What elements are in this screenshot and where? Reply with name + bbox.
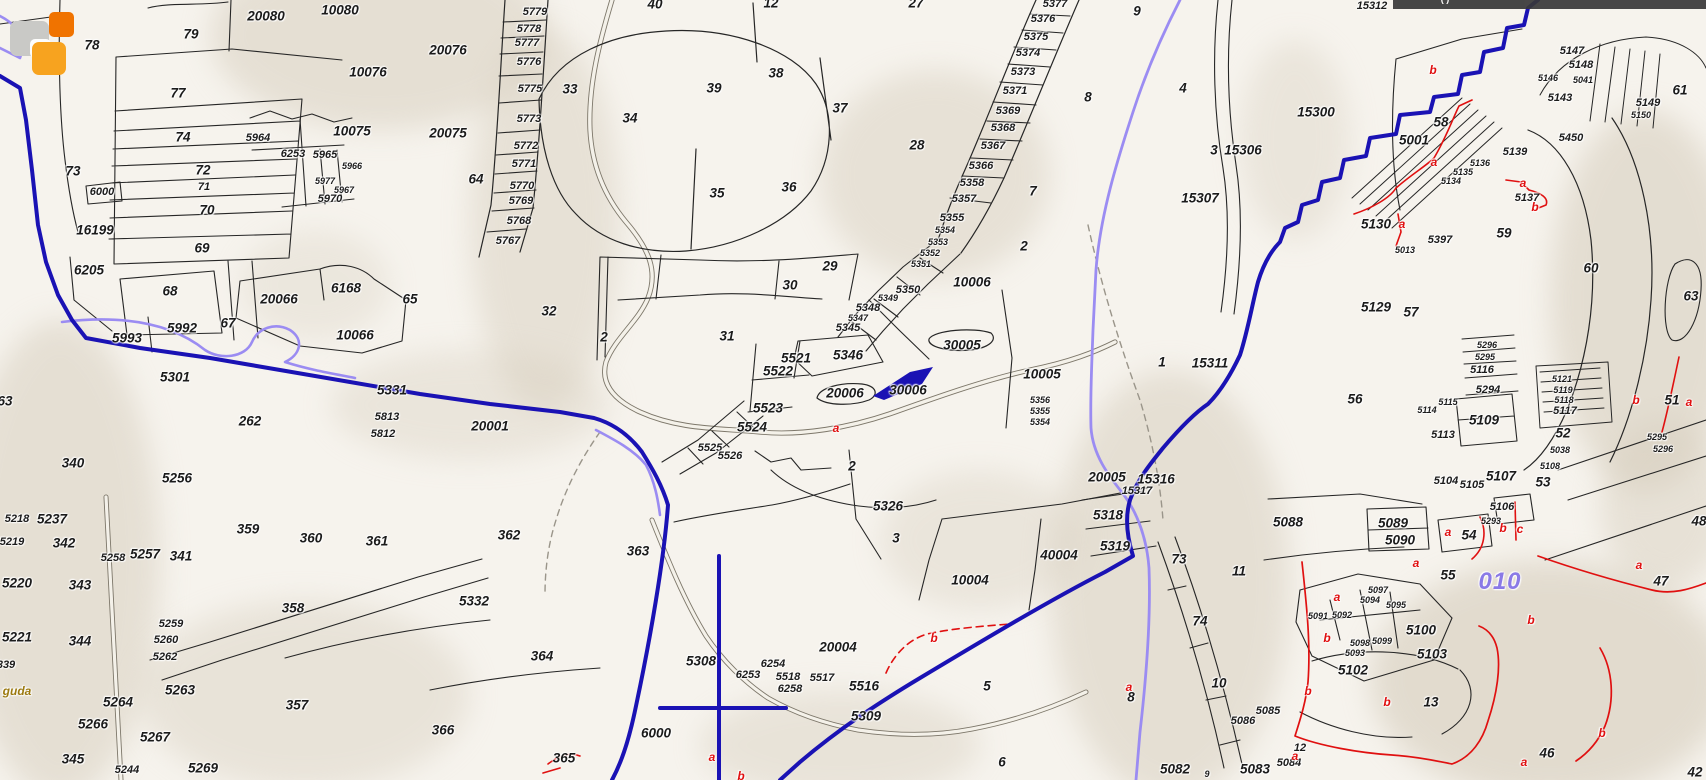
subparcel-letter: b [1598,726,1605,740]
parcel-60-east [1610,118,1652,462]
parcel-label: 5351 [911,259,931,269]
parcel-label: 20080 [247,9,285,24]
parcel-label: 5812 [371,428,395,440]
parcel-label: 59 [1496,226,1511,241]
parcel-label: 5109 [1469,413,1499,428]
parcel-label: 9 [1204,769,1209,779]
parcel-label: 5369 [996,105,1020,117]
parcel-label: 340 [62,456,85,471]
parcel-label: 20001 [471,419,509,434]
parcel-label: 5769 [509,195,533,207]
parcel-label: 5366 [969,160,993,172]
parcel-label: 339 [0,659,15,671]
parcel-label: 5221 [2,630,32,645]
parcel-label: 15317 [1122,485,1153,497]
logo-tile-amber [32,42,66,75]
parcel-label: 35 [709,186,724,201]
parcel-label: 5267 [140,730,170,745]
parcel-label: 5772 [514,140,538,152]
parcel-label: 72 [195,163,210,178]
parcel-label: 31 [719,329,734,344]
parcel-label: 5094 [1360,595,1380,605]
parcel-label: 63 [1683,289,1698,304]
parcel-label: 5964 [246,132,270,144]
parcel-label: 5345 [836,322,860,334]
parcel-label: 6000 [641,726,671,741]
parcel-label: 20004 [819,640,857,655]
grid-nw [109,0,342,264]
parcel-label: 67 [220,316,235,331]
parcel-label: 13 [1423,695,1438,710]
red-b-center [886,624,1010,673]
parcel-label: 5134 [1441,176,1461,186]
parcel-label: 74 [175,130,190,145]
parcel-label: 5100 [1406,623,1436,638]
parcel-label: 6000 [90,186,114,198]
parcel-label: 5977 [315,176,335,186]
parcel-label: 70 [199,203,214,218]
parcel-label: 5041 [1573,75,1593,85]
parcel-label: 2 [600,330,608,345]
parcel-label: 71 [198,181,210,193]
parcel-label: 52 [1555,426,1570,441]
parcel-label: 5779 [523,6,547,18]
strip-358 [150,559,488,680]
red-47 [1538,556,1706,592]
info-bar: ( ) [1393,0,1706,9]
parcel-label: 8 [1084,90,1092,105]
subparcel-letter: b [737,769,744,780]
parcel-label: 53 [1535,475,1550,490]
parcel-label: 5149 [1636,97,1660,109]
subparcel-letter: a [1636,558,1643,572]
subparcel-letter: a [1521,755,1528,769]
parcel-label: 5139 [1503,146,1527,158]
parcel-label: 10006 [953,275,991,290]
parcel-label: 46 [1539,746,1554,761]
parcel-label: 65 [402,292,417,307]
parcel-label: 28 [909,138,924,153]
parcel-label: 1 [1158,355,1166,370]
parcel-label: 5777 [515,37,539,49]
parcel-label: 5108 [1540,461,1560,471]
subparcel-letter: b [1499,521,1506,535]
parcel-label: 5091 [1308,611,1328,621]
parcel-label: 5992 [167,321,197,336]
parcel-label: 5116 [1470,364,1494,376]
parcel-label: 5130 [1361,217,1391,232]
parcel-label: 5966 [342,161,362,171]
parcel-label: 5355 [1030,406,1050,416]
parcel-label: 10080 [321,3,359,18]
parcel-label: 5778 [517,23,541,35]
subparcel-letter: a [1686,395,1693,409]
parcel-label: 5355 [940,212,964,224]
chain-5345 [838,241,960,351]
info-bar-text: ( ) [1441,0,1450,4]
parcel-label: 39 [706,81,721,96]
parcel-label: 5367 [981,140,1005,152]
parcel-label: 5258 [101,552,125,564]
parcel-label: 3 [892,531,900,546]
parcels-29-31 [597,254,858,360]
parcel-label: 5264 [103,695,133,710]
parcel-label: 40004 [1040,548,1078,563]
parcel-label: 36 [781,180,796,195]
parcel-label: 361 [366,534,389,549]
parcel-label: 5965 [313,149,337,161]
parcel-label: 9 [1133,4,1141,19]
strip-73-74 [1158,537,1242,768]
parcel-label: 5776 [517,56,541,68]
parcel-label: 5376 [1031,13,1055,25]
parcel-label: 64 [468,172,483,187]
parcel-label: 5352 [920,248,940,258]
parcel-label: 5526 [718,450,742,462]
parcel-label: 5326 [873,499,903,514]
parcel-label: 79 [183,27,198,42]
parcel-label: 10075 [333,124,371,139]
parcel-label: 37 [832,101,847,116]
subparcel-letter: a [1399,217,1406,231]
parcel-label: 344 [69,634,92,649]
parcel-60-west [1524,130,1593,470]
parcel-label: 2 [848,459,856,474]
parcel-label: 6253 [281,148,305,160]
parcel-label: 5970 [318,193,342,205]
parcel-label: 5113 [1431,429,1455,441]
app-logo [0,0,90,90]
purple-center [596,430,660,515]
parcel-label: 5237 [37,512,67,527]
red-5001 [1354,100,1472,214]
parcel-label: 60 [1583,261,1598,276]
parcel-label: 58 [1433,115,1448,130]
parcel-label: 4 [1179,81,1187,96]
parcel-label: 5086 [1231,715,1255,727]
subparcel-letter: a [1445,525,1452,539]
parcel-label: 5301 [160,370,190,385]
parcel-label: 5373 [1011,66,1035,78]
parcel-label: 5082 [1160,762,1190,777]
parcel-label: 57 [1403,305,1418,320]
parcel-label: 5775 [518,83,542,95]
parcel-label: 5146 [1538,73,1558,83]
parcel-label: 5350 [896,284,920,296]
purple-loop-west [62,319,355,378]
parcel-label: 10005 [1023,367,1061,382]
parcel-label: 74 [1192,614,1207,629]
parcel-label: 5098 [1350,638,1370,648]
parcel-label: 5104 [1434,475,1458,487]
parcel-label: 5256 [162,471,192,486]
parcel-label: 5813 [375,411,399,423]
parcel-label: 5993 [112,331,142,346]
parcel-label: 20076 [429,43,467,58]
parcel-label: 10 [1211,676,1226,691]
parcel-label: 5105 [1460,479,1484,491]
parcel-label: 48 [1691,514,1706,529]
parcel-label: 366 [432,723,455,738]
parcel-label: 20006 [826,386,864,401]
parcel-label: 5013 [1395,245,1415,255]
parcel-label: 5038 [1550,445,1570,455]
parcel-label: 5263 [165,683,195,698]
parcel-label: 343 [69,578,92,593]
parcel-label: 20075 [429,126,467,141]
parcel-label: 5296 [1653,444,1673,454]
parcel-label: 5356 [1030,395,1050,405]
parcel-label: 5296 [1477,340,1497,350]
parcel-label: 5106 [1490,501,1514,513]
parcel-label: 73 [1171,552,1186,567]
subparcel-letter: b [1632,393,1639,407]
parcel-label: 16199 [76,223,114,238]
parcel-label: 30006 [889,383,927,398]
parcel-label: 357 [286,698,309,713]
parcel-label: 5517 [810,672,834,684]
parcel-label: 55 [1440,568,1455,583]
parcel-label: 5319 [1100,539,1130,554]
parcel-label: 33 [562,82,577,97]
parcel-label: 342 [53,536,76,551]
parcel-label: 5095 [1386,600,1406,610]
parcel-label: 5117 [1553,405,1577,417]
parcel-label: 5357 [952,193,976,205]
subparcel-letter: b [1383,695,1390,709]
parcel-label: 5092 [1332,610,1352,620]
parcel-label: 5107 [1486,469,1516,484]
parcel-label: 5346 [833,348,863,363]
parcel-label: 5150 [1631,110,1651,120]
parcel-label: 6 [998,755,1006,770]
parcel-label: 5218 [5,513,29,525]
parcel-label: 77 [170,86,185,101]
parcel-label: 5129 [1361,300,1391,315]
parcel-label: 51 [1664,393,1679,408]
parcel-label: 364 [531,649,554,664]
subparcel-letter: b [1323,631,1330,645]
parcel-label: 5097 [1368,585,1388,595]
parcel-label: 5118 [1554,395,1573,405]
parcel-label: 40 [647,0,662,12]
red-46 [1576,648,1611,761]
parcel-label: 5089 [1378,516,1408,531]
parcel-label: 5368 [991,122,1015,134]
parcel-label: 5371 [1003,85,1027,97]
parcel-label: 5259 [159,618,183,630]
parcel-label: 5103 [1417,647,1447,662]
parcel-label: 5523 [753,401,783,416]
parcel-label: 5773 [517,113,541,125]
parcel-label: 5518 [776,671,800,683]
hatch-5117 [1536,362,1612,428]
purple-main [1091,0,1180,780]
parcel-label: 5143 [1548,92,1572,104]
parcel-label: 2 [1020,239,1028,254]
parcel-label: 5114 [1417,405,1436,415]
parcel-label: 5266 [78,717,108,732]
parcel-label: 6168 [331,281,361,296]
parcel-label: 30005 [943,338,981,353]
logo-tile-orange [49,12,74,37]
parcel-label: 5354 [935,225,955,235]
parcel-label: 5293 [1481,516,1501,526]
parcel-label: 362 [498,528,521,543]
parcel-label: 5308 [686,654,716,669]
parcel-label: 5099 [1372,636,1392,646]
parcel-label: 359 [237,522,260,537]
parcel-label: 20066 [260,292,298,307]
parcel-label: guda [3,684,32,698]
parcel-label: 5524 [737,420,767,435]
parcel-label: 5318 [1093,508,1123,523]
parcel-label: 5090 [1385,533,1415,548]
parcel-label: 5219 [0,536,24,548]
parcel-label: 5121 [1552,374,1572,384]
subparcel-letter: b [930,631,937,645]
parcel-label: 42 [1687,765,1702,780]
parcel-label: 11 [1232,564,1246,579]
parcel-label: 5358 [960,177,984,189]
parcel-label: 15312 [1357,0,1388,12]
subparcel-letter: a [1292,749,1299,763]
parcel-label: 5093 [1345,648,1365,658]
parcel-label: 34 [622,111,637,126]
parcel-label: 7 [1029,184,1037,199]
subparcel-letter: a [1431,155,1438,169]
parcel-label: 6254 [761,658,785,670]
parcel-label: 363 [627,544,650,559]
parcel-label: 345 [62,752,85,767]
map-viewport[interactable]: 7879777472717073692008010080100761007520… [0,0,1706,780]
parcel-label: 68 [162,284,177,299]
parcel-label: 5354 [1030,417,1050,427]
parcel-label: 47 [1653,574,1668,589]
parcel-label: 5349 [878,293,898,303]
parcel-label: 61 [1672,83,1687,98]
dome-34 [539,3,831,251]
parcel-label: 5522 [763,364,793,379]
parcel-label: 5768 [507,215,531,227]
parcel-label: 73 [65,164,80,179]
parcel-label: 5332 [459,594,489,609]
parcel-label: 5295 [1647,432,1667,442]
parcel-label: 5516 [849,679,879,694]
parcel-label: 5088 [1273,515,1303,530]
parcel-label: 6258 [778,683,802,695]
parcel-label: 5770 [510,180,534,192]
subparcel-letter: c [1517,522,1524,536]
parcel-10066 [236,265,406,353]
parcel-label: 15300 [1297,105,1335,120]
parcel-label: 6253 [736,669,760,681]
parcel-label: 5102 [1338,663,1368,678]
parcel-label: 5220 [2,576,32,591]
parcel-label: 5309 [851,709,881,724]
parcel-label: 5 [983,679,991,694]
parcel-label: 8 [1127,690,1135,705]
parcel-label: 5119 [1553,385,1572,395]
parcel-label: 5115 [1438,397,1457,407]
parcel-label: 5001 [1399,133,1429,148]
parcel-label: 5244 [115,764,139,776]
parcel-label: 15311 [1192,356,1229,371]
parcel-label: 365 [553,751,576,766]
subparcel-letter: a [1334,590,1341,604]
parcel-label: 5353 [928,237,948,247]
parcel-label: 5377 [1043,0,1067,10]
parcel-label: 10066 [336,328,374,343]
subparcel-letter: a [833,421,840,435]
parcel-label: 5260 [154,634,178,646]
parcel-label: 5257 [130,547,160,562]
parcel-label: 5269 [188,761,218,776]
parcel-label: 5331 [377,383,407,398]
parcel-label: 5397 [1428,234,1452,246]
parcel-label: 6205 [74,263,104,278]
parcel-label: 358 [282,601,305,616]
parcel-label: 30 [782,278,797,293]
track-dashed-2 [545,432,600,595]
parcel-label: 12 [763,0,778,11]
parcel-label: 341 [170,549,193,564]
zone-label: 010 [1478,568,1521,596]
parcel-label: 5374 [1016,47,1040,59]
strips-48 [1545,420,1706,560]
subparcel-letter: b [1531,200,1538,214]
subparcel-letter: b [1429,63,1436,77]
parcel-label: 69 [194,241,209,256]
parcel-label: 27 [908,0,923,11]
parcel-label: 15306 [1224,143,1262,158]
parcel-label: 5294 [1476,384,1500,396]
road-west-fill [106,497,121,780]
parcel-label: 32 [541,304,556,319]
subparcel-letter: a [1520,176,1527,190]
parcel-label: 5295 [1475,352,1495,362]
parcel-label: 10076 [349,65,387,80]
parcel-label: 5085 [1256,705,1280,717]
parcel-label: 5771 [512,158,536,170]
parcel-label: 5148 [1569,59,1593,71]
parcel-label: 5375 [1024,31,1048,43]
subparcel-letter: a [1413,556,1420,570]
parcel-label: 10004 [951,573,989,588]
parcel-label: 360 [300,531,323,546]
parcel-label: 38 [768,66,783,81]
parcel-label: 5767 [496,235,520,247]
parcel-label: 3 [1210,143,1218,158]
parcel-label: 5450 [1559,132,1583,144]
subparcel-letter: a [709,750,716,764]
parcel-label: 5262 [153,651,177,663]
parcel-label: 5147 [1560,45,1584,57]
parcel-label: 262 [239,414,262,429]
parcel-label: 20005 [1088,470,1126,485]
parcel-label: 29 [822,259,837,274]
parcel-label: 54 [1461,528,1476,543]
subparcel-letter: b [1527,613,1534,627]
parcel-label: 56 [1347,392,1362,407]
parcel-label: 63 [0,394,13,409]
parcel-label: 15307 [1181,191,1219,206]
parcel-label: 5083 [1240,762,1270,777]
subparcel-letter: b [1304,684,1311,698]
